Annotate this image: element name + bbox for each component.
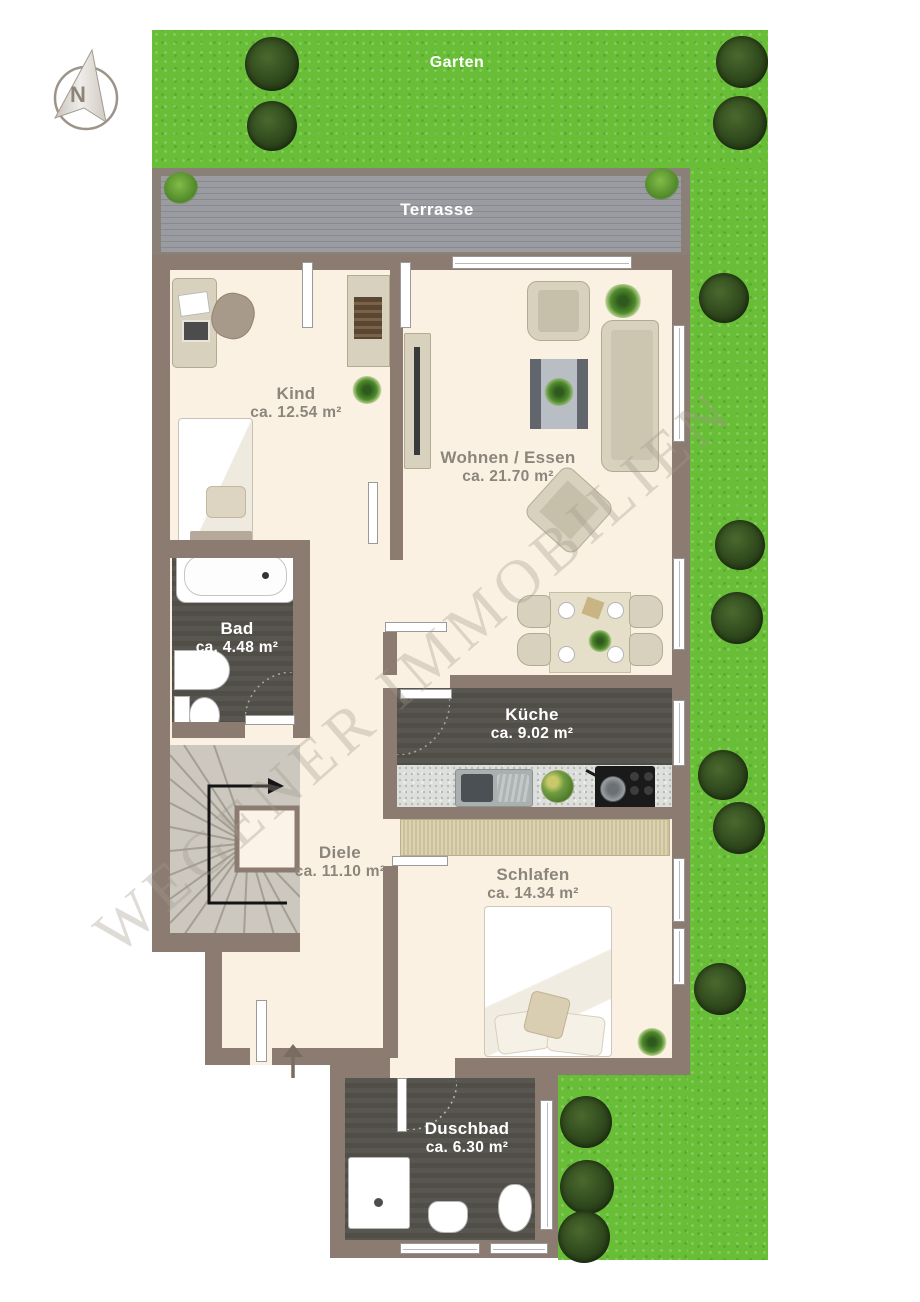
- washbasin-icon: [428, 1201, 468, 1233]
- doorway-threshold: [390, 1058, 455, 1078]
- door-leaf: [400, 689, 452, 699]
- book-icon: [182, 320, 210, 342]
- window: [673, 325, 685, 442]
- wall: [205, 1048, 250, 1065]
- room-label-schlafen: Schlafen ca. 14.34 m²: [423, 865, 643, 903]
- bush-icon: [716, 36, 768, 88]
- compass-north-label: N: [70, 82, 86, 107]
- wall: [383, 807, 672, 819]
- shower-icon: [348, 1157, 410, 1229]
- bush-icon: [698, 750, 748, 800]
- pillow-icon: [206, 486, 246, 518]
- sofa-seat: [611, 330, 653, 460]
- armchair-seat: [538, 290, 579, 332]
- entrance-arrow-icon: [279, 1044, 307, 1080]
- bush-icon: [694, 963, 746, 1015]
- sink-basin: [461, 774, 493, 802]
- bush-icon: [247, 101, 297, 151]
- room-label-wohnen-essen: Wohnen / Essen ca. 21.70 m²: [398, 448, 618, 486]
- plate-icon: [558, 602, 575, 619]
- door-leaf: [302, 262, 313, 328]
- bush-icon: [713, 96, 767, 150]
- window: [673, 928, 685, 985]
- bush-icon: [245, 37, 299, 91]
- wall: [330, 1065, 390, 1078]
- door-leaf: [385, 622, 447, 632]
- bush-icon: [715, 520, 765, 570]
- plant-icon: [544, 378, 574, 406]
- wall: [455, 1065, 558, 1078]
- shower-drain: [374, 1198, 383, 1207]
- dining-chair-icon: [517, 633, 551, 666]
- door-leaf: [400, 262, 411, 328]
- pan-icon: [600, 776, 626, 802]
- door-swing-arc: [245, 672, 293, 720]
- plant-icon: [637, 1028, 667, 1056]
- entrance-door-leaf: [256, 1000, 267, 1062]
- plant-icon: [588, 630, 612, 652]
- window: [490, 1243, 548, 1254]
- garden-lawn-right: [688, 168, 768, 1260]
- shelf-item-icon: [354, 297, 382, 339]
- garden-lawn-top: [152, 30, 768, 168]
- sink-drainer: [497, 774, 529, 802]
- floor-plan-canvas: Garten Terrasse Kind ca. 12.54 m² Wohnen…: [0, 0, 920, 1302]
- window: [673, 700, 685, 766]
- wall: [383, 632, 397, 675]
- laptop-icon: [178, 291, 211, 317]
- bush-icon: [713, 802, 765, 854]
- wall: [450, 675, 672, 688]
- wall: [152, 933, 300, 952]
- faucet-icon: [262, 572, 269, 579]
- wall: [330, 1065, 345, 1258]
- bush-icon: [560, 1160, 614, 1214]
- fruit-bowl-icon: [541, 770, 574, 803]
- terrace-label: Terrasse: [327, 200, 547, 220]
- burner: [630, 772, 639, 781]
- window: [400, 1243, 480, 1254]
- room-label-kueche: Küche ca. 9.02 m²: [422, 705, 642, 743]
- plate-icon: [607, 646, 624, 663]
- plate-icon: [607, 602, 624, 619]
- plate-icon: [558, 646, 575, 663]
- shrub-icon: [645, 168, 679, 200]
- plant-icon: [604, 284, 642, 318]
- room-label-kind: Kind ca. 12.54 m²: [186, 384, 406, 422]
- wall: [152, 255, 170, 952]
- room-label-diele: Diele ca. 11.10 m²: [230, 843, 450, 881]
- wall: [383, 866, 398, 1063]
- toilet-icon: [498, 1184, 532, 1232]
- shrub-icon: [164, 172, 198, 204]
- staircase: [170, 745, 300, 935]
- window: [673, 558, 685, 650]
- room-label-duschbad: Duschbad ca. 6.30 m²: [357, 1119, 577, 1157]
- wall: [152, 540, 310, 558]
- bush-icon: [558, 1211, 610, 1263]
- bush-icon: [699, 273, 749, 323]
- bathtub-inner: [184, 555, 287, 596]
- footprint-notch: [152, 952, 205, 1065]
- compass-icon: N: [48, 48, 128, 133]
- room-label-bad: Bad ca. 4.48 m²: [127, 619, 347, 657]
- garden-label: Garten: [347, 54, 567, 72]
- wall: [172, 722, 245, 738]
- dining-chair-icon: [517, 595, 551, 628]
- wall: [383, 688, 397, 810]
- dining-chair-icon: [629, 633, 663, 666]
- door-leaf: [368, 482, 378, 544]
- window: [452, 256, 632, 269]
- dining-chair-icon: [629, 595, 663, 628]
- tv-icon: [414, 347, 420, 455]
- bush-icon: [711, 592, 763, 644]
- bed-icon: [178, 418, 253, 545]
- window: [673, 858, 685, 922]
